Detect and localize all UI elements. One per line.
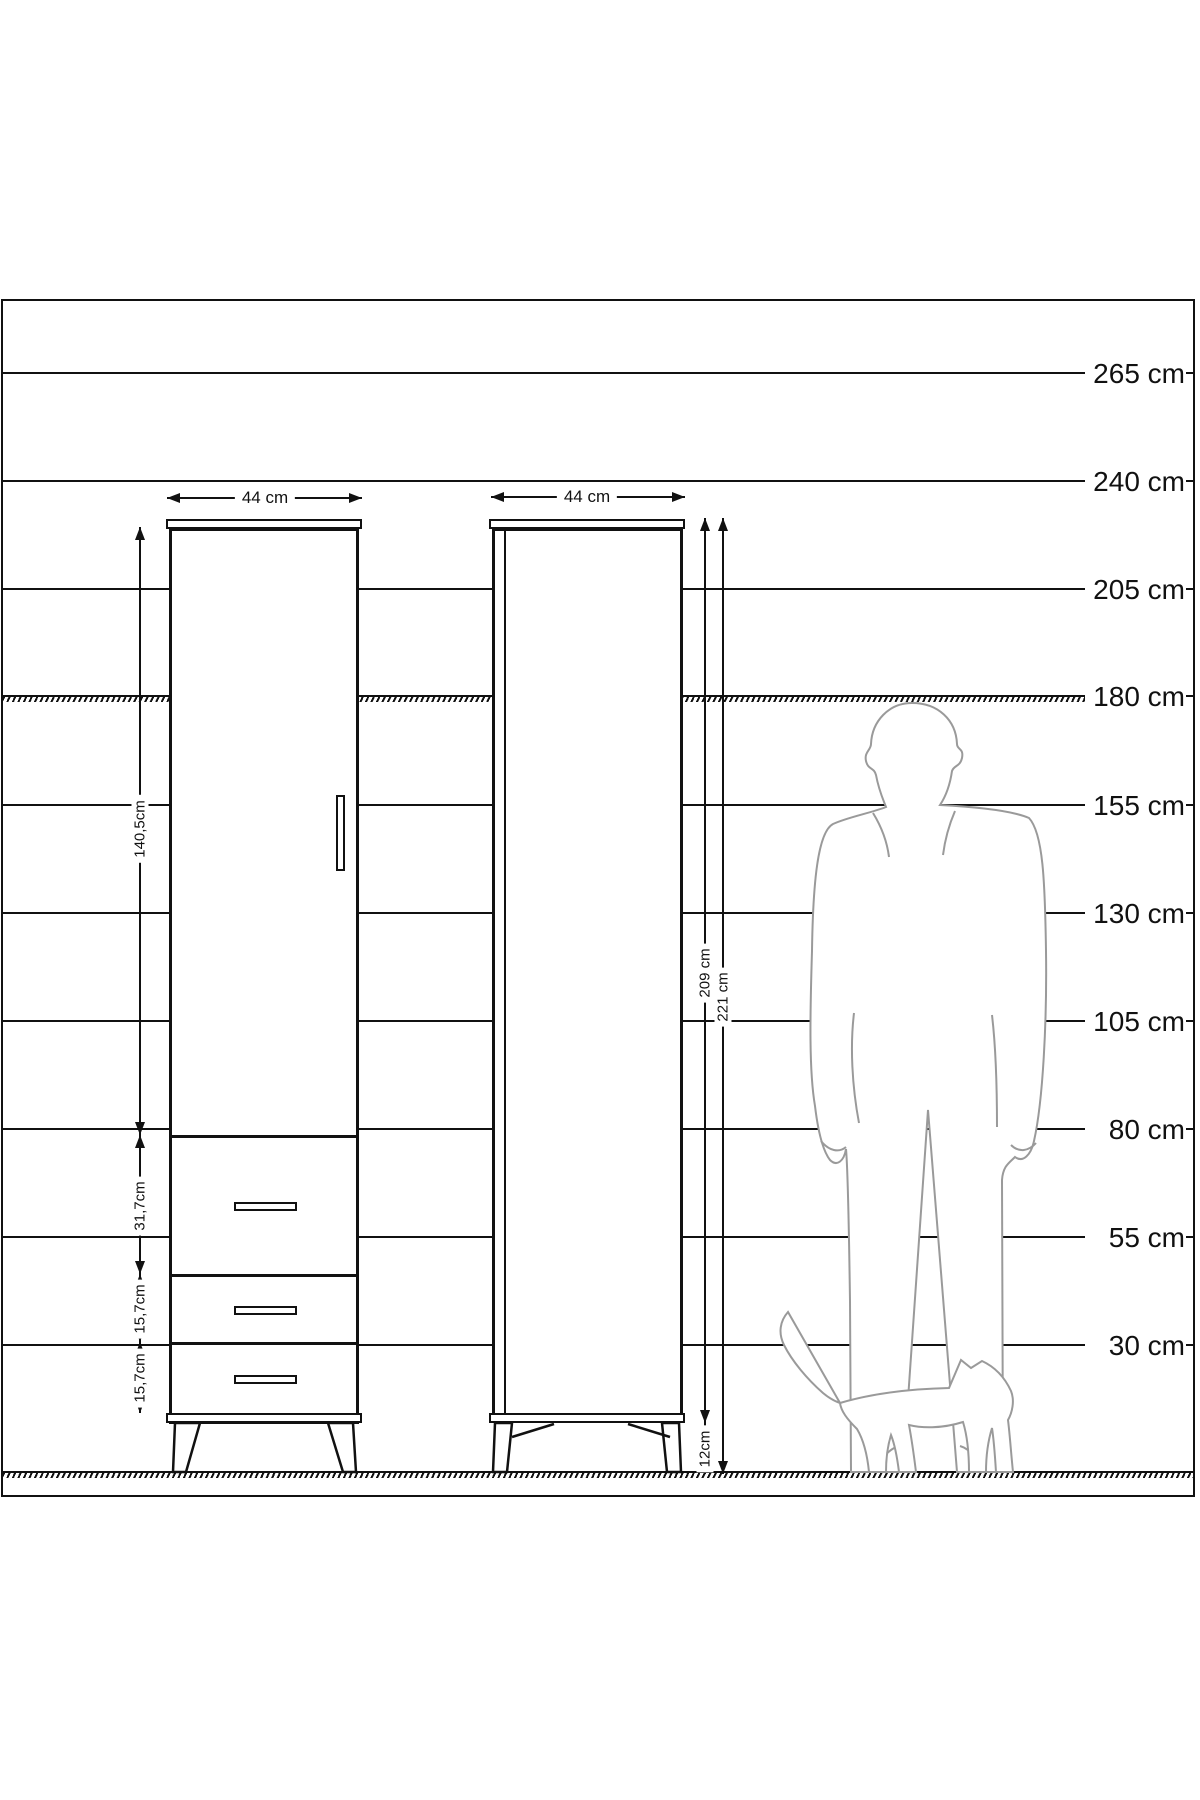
drawer-height-label-3: 15,7cm [132,1348,149,1407]
door-height-label: 140,5cm [132,795,149,863]
drawer-height-label-2: 15,7cm [132,1279,149,1338]
furniture-size-chart: 265 cm 240 cm 205 cm 180 cm 155 cm 130 c… [0,0,1200,1800]
body-height-label: 209 cm [697,943,714,1002]
drawer-height-label-1: 31,7cm [132,1176,149,1235]
leg-height-label: 12cm [697,1426,714,1473]
right-width-dim-label: 44 cm [557,487,617,507]
dimension-annotations: 44 cm 44 cm 140,5cm 31,7cm 15,7cm 15,7cm [3,301,1193,1495]
total-height-label: 221 cm [715,967,732,1026]
left-width-dim-label: 44 cm [235,488,295,508]
dimension-diagram: 265 cm 240 cm 205 cm 180 cm 155 cm 130 c… [1,299,1195,1497]
